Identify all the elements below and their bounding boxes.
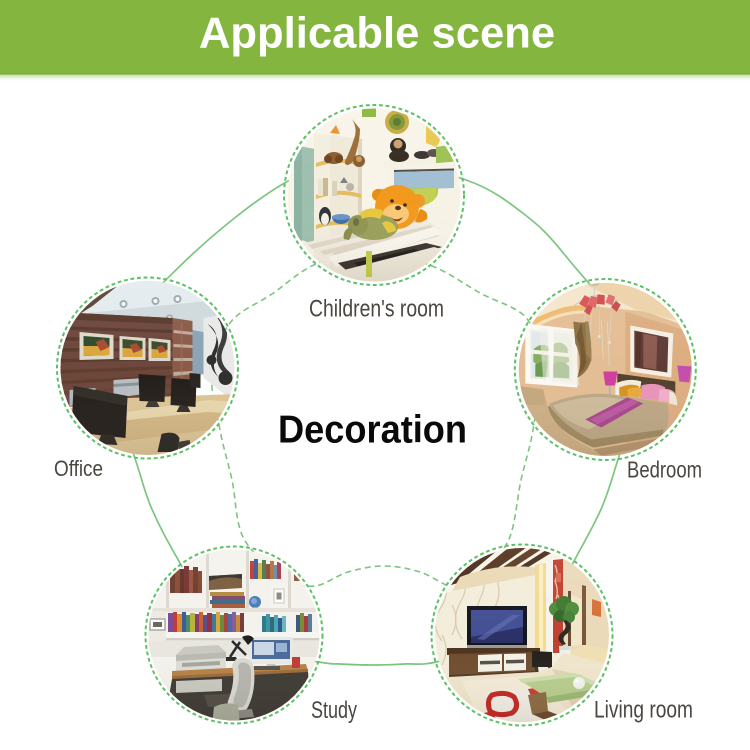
svg-text:Study: Study: [311, 697, 357, 724]
svg-text:Applicable scene: Applicable scene: [199, 10, 555, 58]
svg-text:Children's room: Children's room: [309, 296, 444, 323]
svg-text:Bedroom: Bedroom: [627, 457, 702, 483]
svg-text:Office: Office: [54, 456, 103, 481]
svg-text:Living room: Living room: [594, 697, 693, 724]
svg-text:Decoration: Decoration: [278, 409, 467, 452]
